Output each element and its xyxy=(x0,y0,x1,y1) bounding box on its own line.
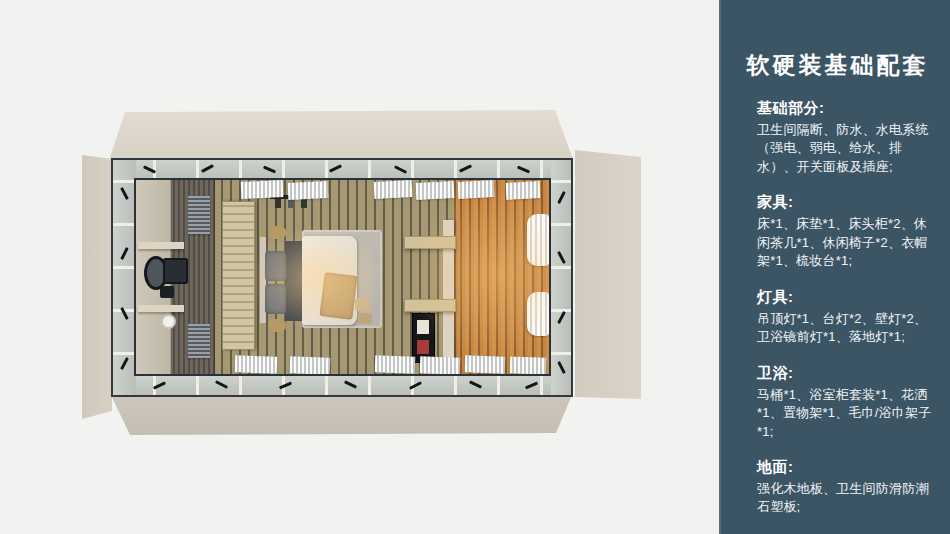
spec-section-lighting: 灯具: 吊顶灯*1、台灯*2、壁灯*2、卫浴镜前灯*1、落地灯*1; xyxy=(757,288,932,347)
window-stay xyxy=(409,381,422,390)
spec-section-bathroom: 卫浴: 马桶*1、浴室柜套装*1、花洒*1、置物架*1、毛巾/浴巾架子*1; xyxy=(757,364,932,441)
section-body: 吊顶灯*1、台灯*2、壁灯*2、卫浴镜前灯*1、落地灯*1; xyxy=(757,310,932,347)
window-stay xyxy=(153,381,166,389)
section-body: 床*1、床垫*1、床头柜*2、休闲茶几*1、休闲椅子*2、衣帽架*1、梳妆台*1… xyxy=(757,215,932,270)
window-band-bottom xyxy=(113,376,571,395)
section-body: 马桶*1、浴室柜套装*1、花洒*1、置物架*1、毛巾/浴巾架子*1; xyxy=(757,386,932,441)
window-stay xyxy=(120,357,129,370)
fold-panel-top xyxy=(103,110,577,160)
window-stay xyxy=(201,164,214,173)
window-stay xyxy=(557,191,566,204)
window-band-right xyxy=(551,160,571,395)
fold-panel-left xyxy=(82,150,112,420)
window-stay xyxy=(394,165,407,174)
room-interior xyxy=(136,180,549,374)
window-stay xyxy=(215,380,228,389)
room-render xyxy=(0,0,719,534)
window-stay xyxy=(517,165,530,173)
window-stay xyxy=(279,381,292,389)
fold-panel-right xyxy=(575,146,641,402)
lamp-glow xyxy=(136,180,549,374)
info-panel: 软硬装基础配套 基础部分: 卫生间隔断、防水、水电系统（强电、弱电、给水、排水）… xyxy=(719,0,950,534)
room-frame xyxy=(111,158,573,397)
section-body: 卫生间隔断、防水、水电系统（强电、弱电、给水、排水）、开关面板及插座; xyxy=(757,121,932,176)
window-stay xyxy=(120,247,128,260)
window-stay xyxy=(143,165,156,173)
section-heading: 家具: xyxy=(757,193,932,212)
window-stay xyxy=(344,380,357,388)
window-band-left xyxy=(113,160,136,395)
panel-title: 软硬装基础配套 xyxy=(735,50,940,81)
window-stay xyxy=(329,164,342,172)
window-stay xyxy=(459,164,472,172)
spec-sections: 基础部分: 卫生间隔断、防水、水电系统（强电、弱电、给水、排水）、开关面板及插座… xyxy=(721,81,950,517)
section-heading: 卫浴: xyxy=(757,364,932,383)
window-stay xyxy=(557,361,566,374)
window-stay xyxy=(557,251,566,264)
fold-panel-bottom xyxy=(106,395,576,436)
spec-section-furniture: 家具: 床*1、床垫*1、床头柜*2、休闲茶几*1、休闲椅子*2、衣帽架*1、梳… xyxy=(757,193,932,270)
window-stay xyxy=(525,381,538,389)
section-heading: 基础部分: xyxy=(757,99,932,118)
slide: 软硬装基础配套 基础部分: 卫生间隔断、防水、水电系统（强电、弱电、给水、排水）… xyxy=(0,0,950,534)
spec-section-basics: 基础部分: 卫生间隔断、防水、水电系统（强电、弱电、给水、排水）、开关面板及插座… xyxy=(757,99,932,176)
window-stay xyxy=(557,311,566,324)
section-heading: 地面: xyxy=(757,458,932,477)
window-stay xyxy=(120,187,129,200)
spec-section-flooring: 地面: 强化木地板、卫生间防滑防潮石塑板; xyxy=(757,458,932,517)
window-stay xyxy=(120,307,129,320)
window-stay xyxy=(263,165,276,173)
section-heading: 灯具: xyxy=(757,288,932,307)
window-stay xyxy=(469,380,482,388)
section-body: 强化木地板、卫生间防滑防潮石塑板; xyxy=(757,480,932,517)
window-band-top xyxy=(113,160,571,180)
